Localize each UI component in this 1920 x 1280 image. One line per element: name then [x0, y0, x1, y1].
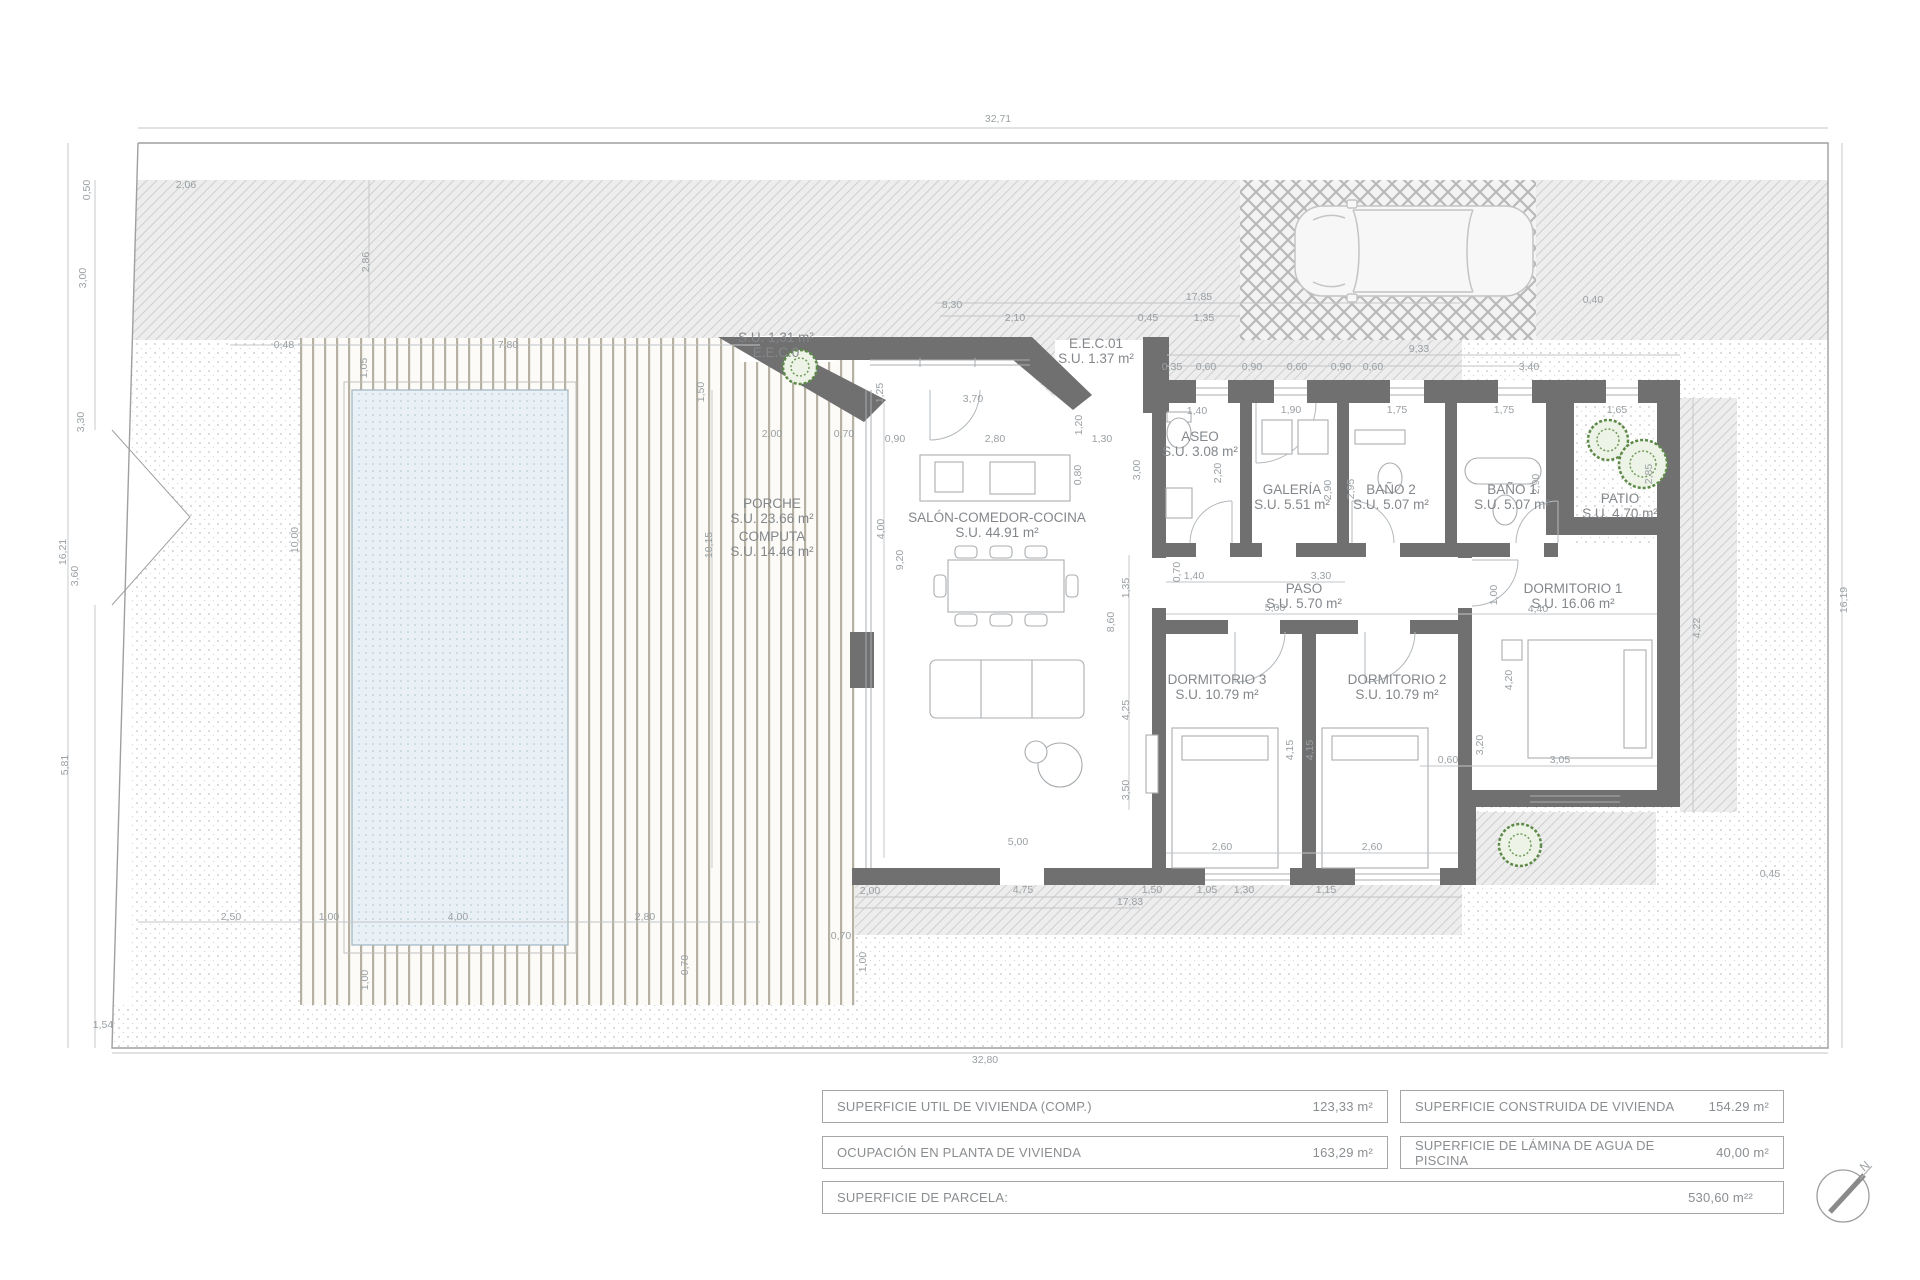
dimension-label: 0,70	[679, 955, 691, 976]
room-label: DORMITORIO 1S.U. 16.06 m²	[1524, 581, 1623, 611]
dimension-label: 1,54	[93, 1019, 114, 1031]
dimension-label: 1,30	[1092, 433, 1113, 445]
dimension-label: 10,00	[289, 527, 301, 553]
dimension-label: 4,20	[1503, 670, 1515, 691]
dimension-label: 3,00	[1131, 460, 1143, 481]
dimension-label: 3,60	[69, 566, 81, 587]
dimension-label: 1,40	[1187, 405, 1208, 417]
dimension-label: 1,35	[1120, 578, 1132, 599]
room-label: COMPUTAS.U. 14.46 m²	[730, 529, 814, 559]
dimension-label: 2,00	[860, 885, 881, 897]
dimension-label: 0,60	[1363, 361, 1384, 373]
dimension-label: 0,35	[1162, 361, 1183, 373]
dimension-label: 2,80	[985, 433, 1006, 445]
dimension-label: 2,00	[762, 428, 783, 440]
swimming-pool	[344, 382, 576, 953]
dining-table	[948, 560, 1064, 612]
cell-value: 163,29 m²	[1301, 1145, 1373, 1160]
table-cell-superficie-util: SUPERFICIE UTIL DE VIVIENDA (COMP.) 123,…	[822, 1090, 1388, 1123]
dimension-label: 1,00	[319, 911, 340, 923]
dimension-label: 3,05	[1550, 754, 1571, 766]
dimension-label: 1,75	[1387, 404, 1408, 416]
dimension-label: 3,50	[1120, 780, 1132, 801]
dimension-label: 0,70	[1171, 562, 1183, 583]
room-label: DORMITORIO 3S.U. 10.79 m²	[1168, 672, 1267, 702]
dimension-label: 4,00	[448, 911, 469, 923]
dimension-label: 2,10	[1005, 312, 1026, 324]
dimension-label: 0,40	[1583, 294, 1604, 306]
dimension-label: 2,50	[221, 911, 242, 923]
dimension-label: 16,21	[57, 539, 69, 565]
dimension-label: 0,90	[1242, 361, 1263, 373]
dimension-label: 1,65	[1607, 404, 1628, 416]
glass-wall-mullion	[850, 632, 874, 688]
dimension-label: 17,85	[1186, 291, 1212, 303]
dimension-label: 1,00	[1488, 585, 1500, 606]
dimension-label: 7,80	[498, 339, 519, 351]
dimension-label: 10,15	[703, 532, 715, 558]
entry-pillar	[1143, 337, 1169, 413]
dimension-label: 9,33	[1409, 343, 1430, 355]
dimension-label: 32,80	[972, 1054, 998, 1066]
dimension-label: 3,20	[1474, 735, 1486, 756]
dimension-label: 1,30	[1234, 884, 1255, 896]
car-icon	[1295, 200, 1533, 302]
cell-value: 154.29 m²	[1697, 1099, 1769, 1114]
dimension-label: 1,00	[359, 970, 371, 991]
dimension-label: 0,60	[1196, 361, 1217, 373]
dimension-label: 0,50	[81, 180, 93, 201]
dimension-label: 0,70	[831, 930, 852, 942]
dimension-label: 1,05	[358, 358, 370, 379]
dimension-label: 1,05	[1197, 884, 1218, 896]
dimension-label: 2,20	[1212, 463, 1224, 484]
floor-plan-page: N 32,7132,8016,2116,190,503,003,303,605,…	[0, 0, 1920, 1280]
sofa	[930, 660, 1084, 718]
dimension-label: 16,19	[1838, 587, 1850, 613]
table-cell-superficie-construida: SUPERFICIE CONSTRUIDA DE VIVIENDA 154.29…	[1400, 1090, 1784, 1123]
cell-value: 123,33 m²	[1301, 1099, 1373, 1114]
dimension-label: 5,81	[59, 755, 71, 776]
dimension-label: 3,40	[1519, 361, 1540, 373]
dimension-label: 0,60	[1287, 361, 1308, 373]
dimension-label: 8,30	[942, 299, 963, 311]
dimension-label: 1,40	[1184, 570, 1205, 582]
dimension-label: 2,60	[1362, 841, 1383, 853]
dimension-label: 0,90	[1331, 361, 1352, 373]
dimension-label: 4,25	[1120, 700, 1132, 721]
dimension-label: 2,80	[635, 911, 656, 923]
table-cell-lamina-agua: SUPERFICIE DE LÁMINA DE AGUA DE PISCINA …	[1400, 1136, 1784, 1169]
north-label: N	[1857, 1158, 1873, 1174]
room-label: GALERÍAS.U. 5.51 m²	[1254, 482, 1330, 512]
cell-value: 530,60 m²²	[1676, 1190, 1769, 1205]
dimension-label: 2,85	[1643, 464, 1655, 485]
dimension-label: 2,06	[176, 179, 197, 191]
dimension-label: 1,25	[874, 383, 886, 404]
dimension-label: 0,48	[274, 339, 295, 351]
dimension-label: 1,20	[1073, 415, 1085, 436]
dimension-label: 0,80	[1072, 465, 1084, 486]
tree-icon	[1499, 824, 1541, 866]
dimension-label: 1,75	[1494, 404, 1515, 416]
cell-label: SUPERFICIE DE LÁMINA DE AGUA DE PISCINA	[1415, 1138, 1704, 1168]
dimension-label: 3,30	[75, 412, 87, 433]
dimension-label: 0,45	[1138, 312, 1159, 324]
dimension-label: 3,00	[77, 268, 89, 289]
dimension-label: 1,35	[1194, 312, 1215, 324]
tv-unit	[1146, 735, 1158, 793]
room-label: DORMITORIO 2S.U. 10.79 m²	[1348, 672, 1447, 702]
dimension-label: 1,50	[1142, 884, 1163, 896]
dimension-label: 4,15	[1284, 740, 1296, 761]
cell-label: SUPERFICIE CONSTRUIDA DE VIVIENDA	[1415, 1099, 1674, 1114]
dimension-label: 0,90	[885, 433, 906, 445]
dimension-label: 17,83	[1117, 896, 1143, 908]
dimension-label: 9,20	[894, 550, 906, 571]
dimension-label: 1,15	[1316, 884, 1337, 896]
cell-label: SUPERFICIE DE PARCELA:	[837, 1190, 1008, 1205]
cell-value: 40,00 m²	[1704, 1145, 1769, 1160]
dimension-label: 1,90	[1281, 404, 1302, 416]
table-cell-ocupacion: OCUPACIÓN EN PLANTA DE VIVIENDA 163,29 m…	[822, 1136, 1388, 1169]
dimension-label: 0,45	[1760, 868, 1781, 880]
dimension-label: 4,00	[875, 519, 887, 540]
dimension-label: 4,15	[1304, 740, 1316, 761]
dimension-label: 3,70	[963, 393, 984, 405]
dimension-label: 4,22	[1691, 618, 1703, 639]
dimension-label: 5,00	[1008, 836, 1029, 848]
cell-label: OCUPACIÓN EN PLANTA DE VIVIENDA	[837, 1145, 1081, 1160]
north-compass: N	[1817, 1158, 1873, 1222]
dimension-label: 1,00	[857, 952, 869, 973]
dimension-label: 4,75	[1013, 884, 1034, 896]
room-label: E.E.C.01S.U. 1.37 m²	[1058, 336, 1134, 366]
dimension-label: 0,70	[834, 428, 855, 440]
dimension-label: 2,86	[360, 252, 372, 273]
cell-label: SUPERFICIE UTIL DE VIVIENDA (COMP.)	[837, 1099, 1092, 1114]
dimension-label: 2,60	[1212, 841, 1233, 853]
porch-floor	[755, 358, 855, 1005]
dimension-label: 32,71	[985, 113, 1011, 125]
dimension-label: 0,60	[1438, 754, 1459, 766]
dimension-label: 1,50	[695, 382, 707, 403]
site-plan-drawing: N 32,7132,8016,2116,190,503,003,303,605,…	[0, 0, 1920, 1280]
table-cell-parcela: SUPERFICIE DE PARCELA: 530,60 m²²	[822, 1181, 1784, 1214]
dimension-label: 8,60	[1105, 612, 1117, 633]
